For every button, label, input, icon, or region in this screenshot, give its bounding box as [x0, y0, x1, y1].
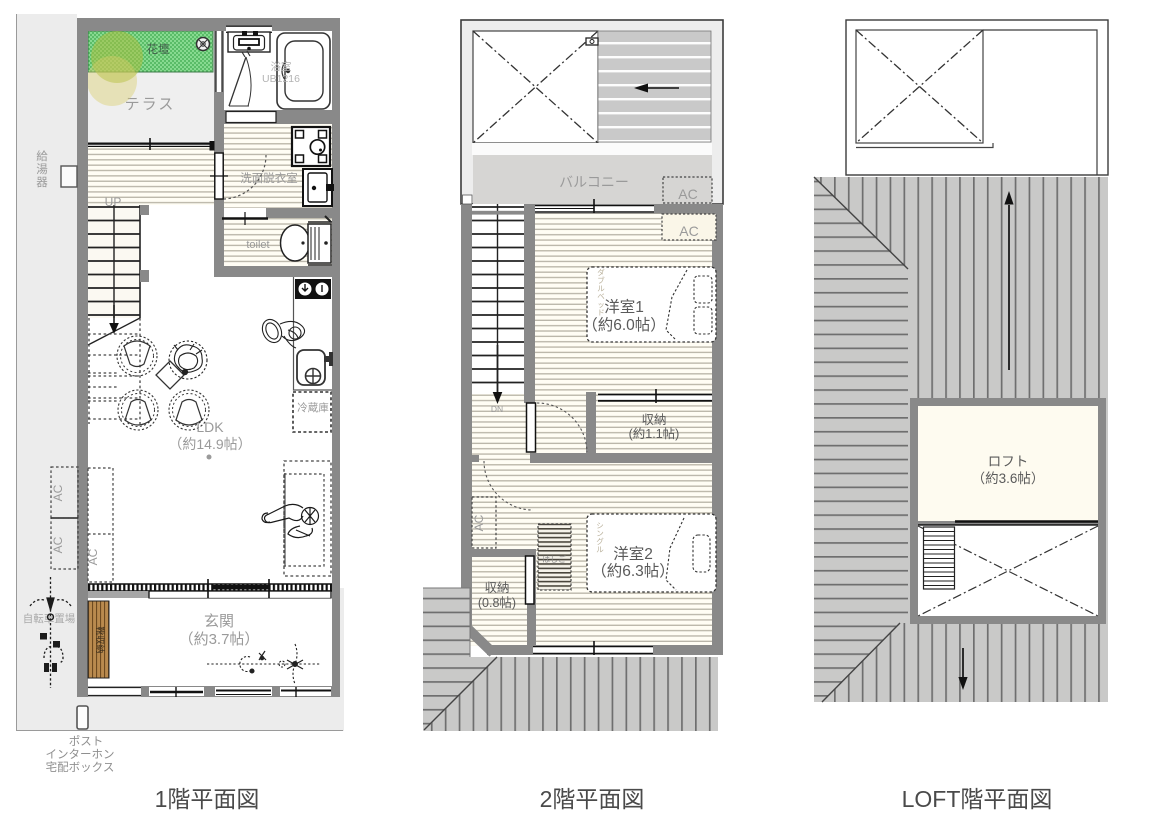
svg-text:LDK: LDK [196, 419, 224, 435]
svg-text:テラス: テラス [125, 96, 176, 113]
svg-text:洗面脱衣室: 洗面脱衣室 [240, 171, 298, 185]
svg-text:AC: AC [51, 484, 65, 501]
svg-text:toilet: toilet [246, 239, 269, 251]
svg-text:2階平面図: 2階平面図 [540, 786, 645, 812]
svg-text:UB1216: UB1216 [262, 73, 300, 85]
svg-text:インターホン: インターホン [46, 748, 115, 761]
svg-text:浴室: 浴室 [271, 60, 292, 73]
svg-text:ポスト: ポスト [69, 735, 104, 748]
svg-text:1階平面図: 1階平面図 [155, 786, 260, 812]
svg-text:AC: AC [51, 536, 65, 553]
svg-text:洋室2: 洋室2 [613, 545, 653, 563]
svg-text:バルコニー: バルコニー [559, 174, 629, 190]
svg-text:ロフト: ロフト [988, 454, 1029, 469]
svg-text:UP: UP [105, 195, 122, 209]
svg-text:(0.8帖): (0.8帖) [478, 595, 516, 610]
svg-text:（約14.9帖）: （約14.9帖） [168, 436, 251, 452]
svg-text:AC: AC [472, 514, 486, 531]
svg-text:DN: DN [491, 404, 503, 414]
svg-text:靴収納: 靴収納 [95, 626, 106, 653]
svg-text:（約3.6帖）: （約3.6帖） [972, 471, 1045, 486]
svg-text:AC: AC [679, 223, 698, 239]
svg-text:給湯器: 給湯器 [36, 149, 48, 189]
svg-text:シングル: シングル [596, 521, 604, 554]
svg-text:花壇: 花壇 [147, 42, 170, 56]
svg-text:（約6.3帖）: （約6.3帖） [591, 562, 675, 580]
svg-text:（約6.0帖）: （約6.0帖） [582, 316, 666, 334]
svg-text:冷蔵庫: 冷蔵庫 [297, 401, 329, 414]
svg-text:収納: 収納 [641, 413, 666, 427]
svg-text:(約1.1帖): (約1.1帖) [629, 426, 680, 441]
svg-text:（約3.7帖）: （約3.7帖） [179, 631, 260, 648]
svg-text:玄関: 玄関 [204, 613, 234, 630]
svg-text:LOFT階平面図: LOFT階平面図 [902, 786, 1053, 812]
svg-text:宅配ボックス: 宅配ボックス [46, 760, 115, 774]
svg-text:はしご: はしご [542, 554, 566, 564]
svg-text:洋室1: 洋室1 [604, 298, 644, 316]
svg-text:AC: AC [678, 186, 697, 202]
svg-text:AC: AC [86, 548, 100, 565]
svg-text:収納: 収納 [484, 581, 509, 595]
